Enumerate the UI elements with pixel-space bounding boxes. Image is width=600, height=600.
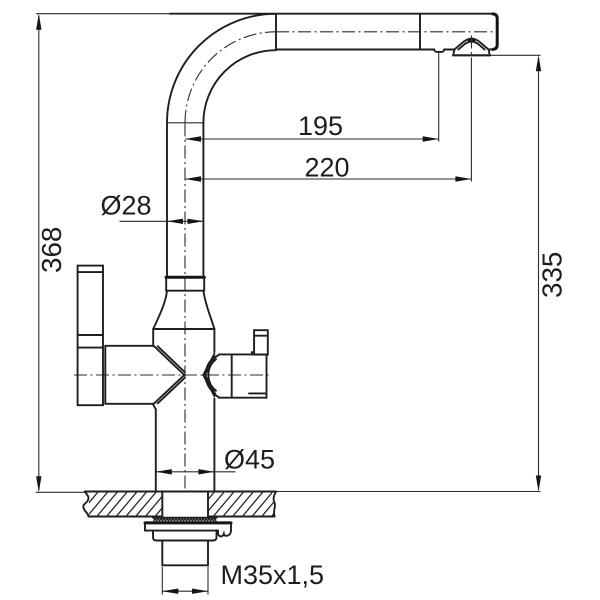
svg-text:368: 368 — [36, 227, 67, 273]
svg-text:Ø28: Ø28 — [101, 191, 152, 221]
svg-text:335: 335 — [537, 252, 568, 298]
svg-text:Ø45: Ø45 — [224, 445, 275, 475]
svg-text:195: 195 — [298, 111, 343, 141]
svg-text:M35x1,5: M35x1,5 — [221, 560, 325, 590]
svg-text:220: 220 — [305, 153, 350, 183]
